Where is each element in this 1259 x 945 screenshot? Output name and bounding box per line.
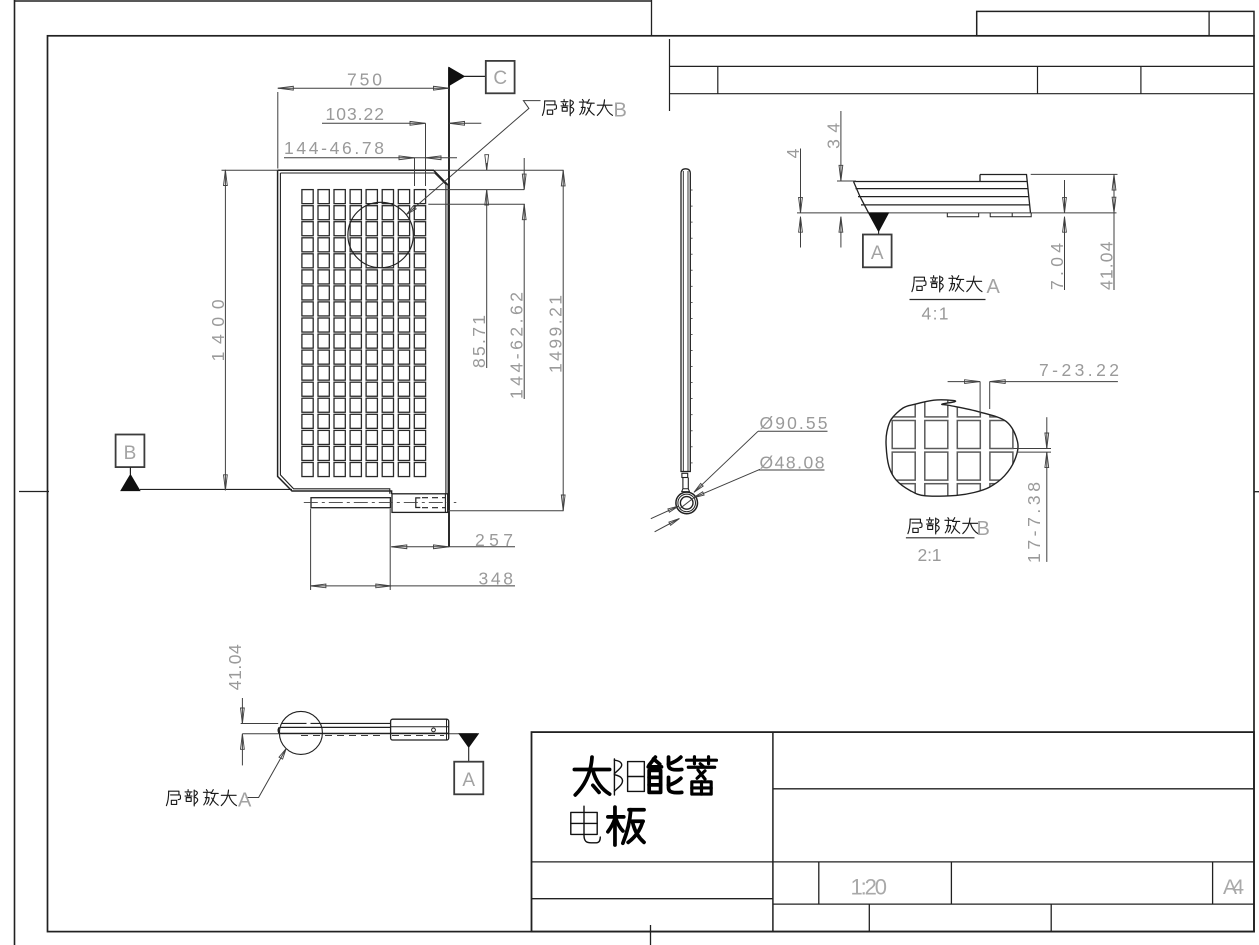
svg-text:A: A xyxy=(238,790,252,812)
svg-text:A4: A4 xyxy=(1223,876,1244,899)
svg-text:750: 750 xyxy=(347,70,382,90)
svg-text:1:20: 1:20 xyxy=(851,875,888,900)
svg-text:2:1: 2:1 xyxy=(918,545,942,565)
svg-text:A: A xyxy=(871,243,884,264)
svg-text:41.04: 41.04 xyxy=(1097,241,1117,290)
svg-text:41.04: 41.04 xyxy=(225,644,245,690)
svg-text:4: 4 xyxy=(783,148,803,158)
svg-text:Ø90.55: Ø90.55 xyxy=(760,413,828,433)
svg-text:144-46.78: 144-46.78 xyxy=(284,138,384,158)
svg-text:7.04: 7.04 xyxy=(1047,243,1067,290)
svg-text:85.71: 85.71 xyxy=(469,315,489,368)
svg-text:257: 257 xyxy=(475,530,513,550)
svg-text:A: A xyxy=(462,770,475,791)
svg-text:144-62.62: 144-62.62 xyxy=(507,292,527,399)
svg-text:103.22: 103.22 xyxy=(326,104,385,124)
svg-text:Ø48.08: Ø48.08 xyxy=(760,453,825,473)
svg-text:C: C xyxy=(493,68,507,89)
svg-text:4:1: 4:1 xyxy=(922,304,949,324)
svg-text:B: B xyxy=(614,100,627,122)
svg-text:A: A xyxy=(987,276,1001,298)
svg-text:348: 348 xyxy=(479,569,514,589)
svg-text:B: B xyxy=(977,518,990,540)
svg-text:B: B xyxy=(124,443,137,464)
